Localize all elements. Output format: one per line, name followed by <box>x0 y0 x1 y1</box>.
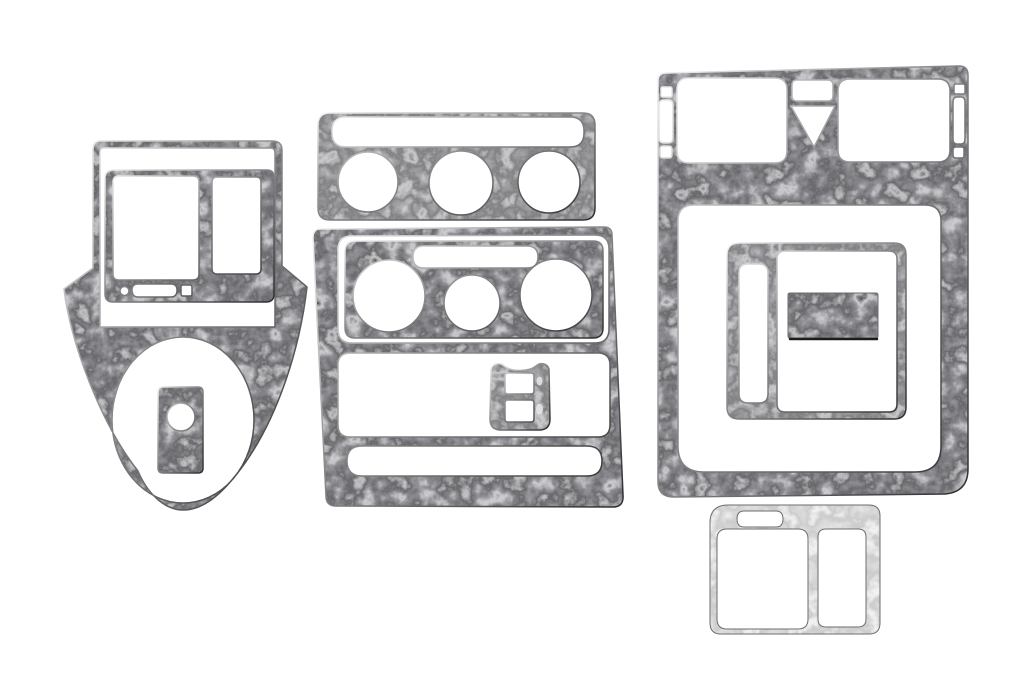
switch-plate-glint <box>536 404 543 415</box>
piece-fill <box>788 293 878 338</box>
switch-plate-glint <box>537 377 543 386</box>
trim-kit-photo: Product photo of an eleven-piece dark bu… <box>0 0 1024 681</box>
product-photo-svg: Product photo of an eleven-piece dark bu… <box>0 0 1024 681</box>
piece-blank-plate: Rectangular blank plate <box>788 293 878 339</box>
